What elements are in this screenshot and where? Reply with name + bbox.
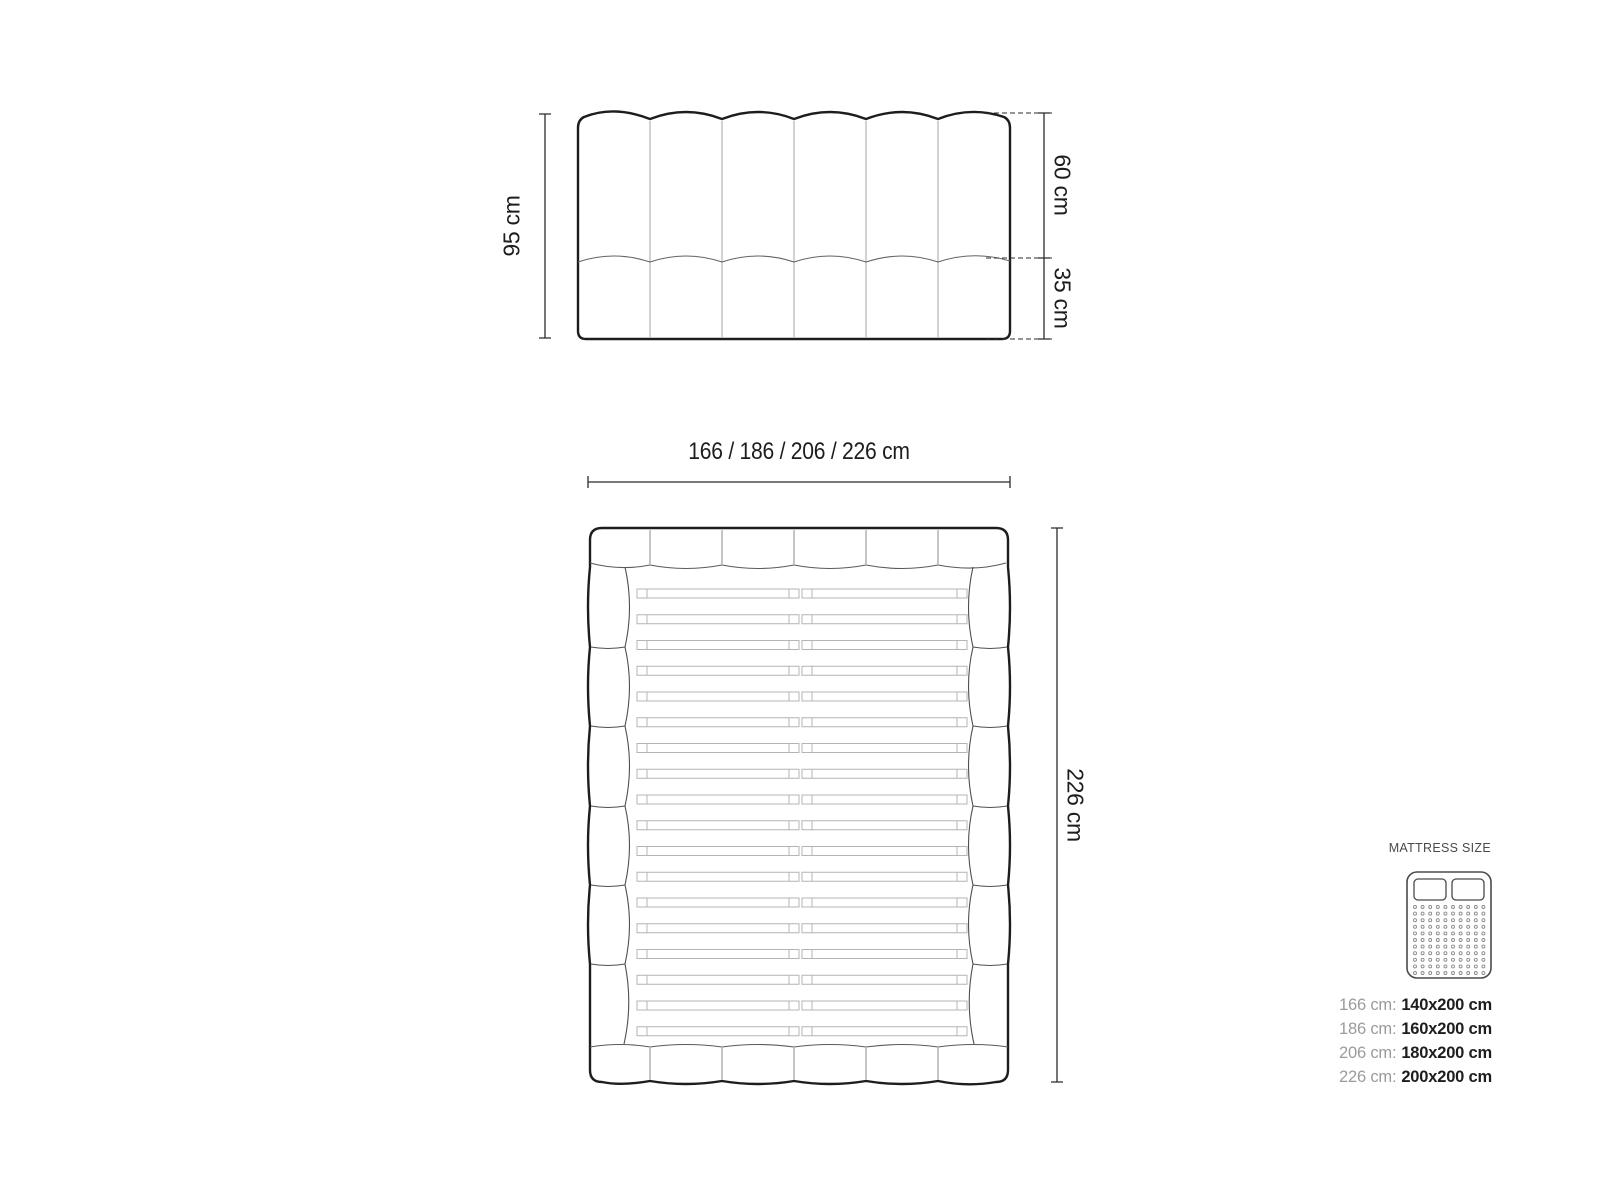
- mattress-size-row: 166 cm:140x200 cm: [1280, 993, 1492, 1017]
- mattress-size-value: 140x200 cm: [1401, 996, 1492, 1014]
- mattress-size-row: 226 cm:200x200 cm: [1280, 1065, 1492, 1089]
- mattress-size-row: 186 cm:160x200 cm: [1280, 1017, 1492, 1041]
- mattress-size-value: 160x200 cm: [1401, 1020, 1492, 1038]
- width-dimension-label: 166 / 186 / 206 / 226 cm: [688, 438, 909, 466]
- bed-top-view: [588, 528, 1010, 1084]
- length-dimension-label: 226 cm: [1062, 768, 1089, 842]
- bed-dimension-diagram: 95 cm 60 cm 35 cm 166 / 186 / 206 / 226 …: [0, 0, 1600, 1200]
- mattress-size-value: 200x200 cm: [1401, 1068, 1492, 1086]
- mattress-size-value: 180x200 cm: [1401, 1044, 1492, 1062]
- frame-width-label: 186 cm:: [1339, 1020, 1396, 1038]
- width-dimension-line: [588, 476, 1010, 488]
- mattress-body: [1407, 872, 1491, 978]
- height-dimension-line: [539, 114, 551, 338]
- height-dimension-label: 95 cm: [499, 195, 526, 256]
- frame-width-label: 166 cm:: [1339, 996, 1396, 1014]
- upper-segment-dimension-label: 60 cm: [1049, 154, 1076, 215]
- frame-width-label: 226 cm:: [1339, 1068, 1396, 1086]
- mattress-size-title: MATTRESS SIZE: [1291, 841, 1491, 855]
- headboard-front-view: [578, 111, 1010, 339]
- frame-width-label: 206 cm:: [1339, 1044, 1396, 1062]
- mattress-size-row: 206 cm:180x200 cm: [1280, 1041, 1492, 1065]
- mattress-size-list: 166 cm:140x200 cm 186 cm:160x200 cm 206 …: [1280, 993, 1492, 1089]
- lower-segment-dimension-label: 35 cm: [1049, 267, 1076, 328]
- mattress-top-view-icon: [1405, 870, 1493, 980]
